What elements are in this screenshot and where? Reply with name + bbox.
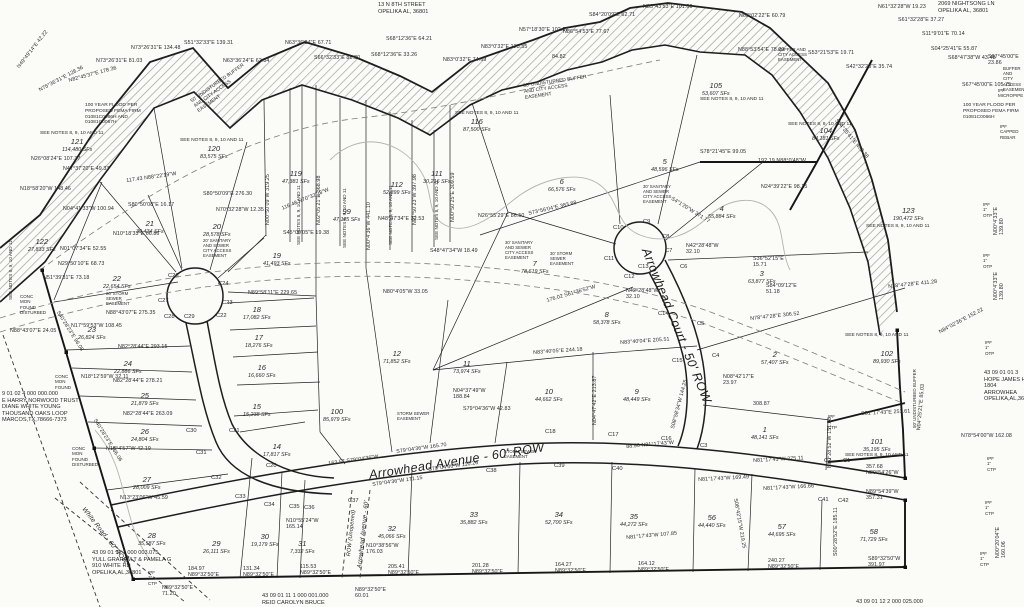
monument-label: IPF 1" CTP xyxy=(987,456,996,472)
lot-number: 28 xyxy=(138,532,166,541)
lot-label: 5744,695 SFs xyxy=(768,523,796,538)
lot-number: 100 xyxy=(323,408,351,417)
lot-number: 29 xyxy=(203,540,230,549)
note-label: 20' STORM SEWER EASEMENT xyxy=(106,291,130,306)
curve-label: C9 xyxy=(643,219,650,226)
bearing-distance-label: N13°23'06"W 45.59 xyxy=(120,495,168,501)
note-label: 100 YEAR FLOOD PER PROPOSED FEMA FIRM 01… xyxy=(963,103,1019,120)
bearing-distance-label: S89°32'50"W 391.97 xyxy=(868,556,900,569)
lot-area: 44,440 SFs xyxy=(698,523,726,529)
bearing-distance-label: 240.27 N89°32'50"E xyxy=(768,558,799,571)
bearing-distance-label: 176.02 S61°36'52"W xyxy=(546,284,596,304)
lot-area: 73,974 SFs xyxy=(453,369,481,375)
lot-number: 120 xyxy=(200,145,228,154)
lot-area: 28,578 SFs xyxy=(203,232,231,238)
lot-number: 8 xyxy=(593,311,621,320)
bearing-distance-label: N04°37'49"W 188.84 xyxy=(453,388,486,401)
lot-number: 17 xyxy=(245,334,273,343)
monument-label: IPF 1" OTP xyxy=(985,340,994,356)
bearing-distance-label: 357.68 N89°54'26"W xyxy=(866,464,899,477)
lot-number: 24 xyxy=(114,360,142,369)
bearing-distance-label: N81°17'43"W 107.85 xyxy=(626,531,677,542)
bearing-distance-label: S79°04'36"W 42.83 xyxy=(463,406,511,412)
bearing-distance-label: N00°4'36"W 441.10 xyxy=(366,202,372,250)
bearing-distance-label: N04°47'42"E 213.87 xyxy=(592,375,598,425)
bearing-distance-label: N83°40'05"E 244.18 xyxy=(533,347,583,357)
lot-label: 1417,817 SFs xyxy=(263,443,291,458)
curve-label: C10 xyxy=(613,225,624,232)
lot-number: 20 xyxy=(203,223,231,232)
bearing-distance-label: N10°38'56"W 176.03 xyxy=(366,543,399,556)
bearing-distance-label: 192.19 N88°0'48"W xyxy=(758,158,806,164)
lot-area: 85,979 SFs xyxy=(323,417,351,423)
curve-label: C42 xyxy=(838,498,849,505)
curve-label: C5 xyxy=(697,321,704,328)
lot-number: 101 xyxy=(863,438,891,447)
adjacent-owner-label: 2069 NIGHTSONG LN OPELIKA AL, 36801 xyxy=(938,1,995,14)
lot-area: 66,576 SFs xyxy=(548,187,576,193)
note-label: 50' UNDISTURBED BUFFER AND CITY ACCESS E… xyxy=(190,63,252,114)
lot-area: 26,111 SFs xyxy=(203,549,230,555)
curve-label: C4 xyxy=(712,353,719,360)
lot-number: 14 xyxy=(263,443,291,452)
street-name-label: ROW (Unopened) xyxy=(346,509,357,556)
lot-area: 55,884 SFs xyxy=(708,214,736,220)
lot-area: 48,141 SFs xyxy=(751,435,779,441)
lot-number: 111 xyxy=(423,170,451,179)
curve-label: C23 xyxy=(222,300,233,307)
lot-area: 30,216 SFs xyxy=(423,179,451,185)
curve-label: C22 xyxy=(216,313,227,320)
lot-area: 35,882 SFs xyxy=(460,520,488,526)
note-label: SEE NOTES 8, 9, 10 AND 11 xyxy=(866,224,930,230)
lot-area: 21,879 SFs xyxy=(131,401,159,407)
lot-label: 123190,472 SFs xyxy=(893,207,924,222)
curve-label: C17 xyxy=(608,432,619,439)
bearing-distance-label: S79°04'36"W 165.70 xyxy=(396,442,447,455)
lot-number: 22 xyxy=(103,275,131,284)
bearing-distance-label: N49°49'14"E 42.22 xyxy=(16,29,50,69)
lot-label: 3335,882 SFs xyxy=(460,511,488,526)
lot-number: 11 xyxy=(453,360,481,369)
bearing-distance-label: S4°1'20"W 371.77 xyxy=(670,196,711,225)
bearing-distance-label: N80°4'05"W 33.05 xyxy=(383,289,428,295)
curve-label: C34 xyxy=(264,502,275,509)
lot-label: 10289,930 SFs xyxy=(873,350,901,365)
curve-label: C1 xyxy=(843,458,850,465)
note-label: SEE NOTES 8, 9, 10 AND 11 xyxy=(434,180,439,240)
note-label: STORM SEWER EASEMENT xyxy=(397,411,429,421)
curve-label: C28 xyxy=(164,314,175,321)
bearing-distance-label: S66°32'33"E 88.20 xyxy=(314,55,360,61)
curve-label: C11 xyxy=(604,256,614,263)
bearing-distance-label: N01°07'34"E 52.55 xyxy=(60,246,106,252)
lot-number: 56 xyxy=(698,514,726,523)
bearing-distance-label: S36°52'15"E 15.71 xyxy=(753,256,784,269)
bearing-distance-label: 164.12 N89°32'50"E xyxy=(638,561,669,574)
adjacent-owner-label: 13 N 8TH STREET OPELIKA AL, 36801 xyxy=(378,2,428,15)
lot-label: 948,449 SFs xyxy=(623,388,651,403)
bearing-distance-label: S68°12'36"E 33.26 xyxy=(371,52,417,58)
lot-area: 48,449 SFs xyxy=(623,397,651,403)
lot-area: 44,272 SFs xyxy=(620,522,648,528)
lot-area: 71,852 SFs xyxy=(383,359,411,365)
lot-area: 17,082 SFs xyxy=(243,315,271,321)
curve-label: C32 xyxy=(211,475,222,482)
lot-area: 16,660 SFs xyxy=(248,373,276,379)
curve-label: C37 xyxy=(348,498,359,505)
bearing-distance-label: N26°08'24"E 107.37 xyxy=(31,156,81,162)
note-label: 50' UNDISTURBED BUFFER AND CITY ACCESS E… xyxy=(523,75,589,101)
note-label: SEE NOTES 8, 9, 10 AND 11 xyxy=(8,240,13,300)
bearing-distance-label: N83°0'32"E 74.69 xyxy=(443,57,486,63)
lot-label: 11947,381 SFs xyxy=(282,170,310,185)
note-label: SEE NOTES 8, 9, 10 AND 11 xyxy=(455,111,519,117)
lot-area: 24,804 SFs xyxy=(131,437,159,443)
bearing-distance-label: S73°56'04"E 383.88 xyxy=(528,200,577,217)
curve-label: C33 xyxy=(235,494,246,501)
lot-label: 1044,662 SFs xyxy=(535,388,563,403)
bearing-distance-label: S67°45'00"E 23.86 xyxy=(988,54,1024,67)
lot-number: 21 xyxy=(136,220,164,229)
street-name-label: Arrowhead Avenue - 60' xyxy=(357,500,371,569)
bearing-distance-label: S78°21'45"E 99.05 xyxy=(700,149,746,155)
adjacent-owner-label: 9 01 02 4 000 000.000 E HARRY NORWOOD TR… xyxy=(2,391,79,424)
note-label: SEE NOTES 8, 9, 10 AND 11 xyxy=(700,97,764,103)
monument-label: IPF 1" OTP xyxy=(983,202,992,218)
lot-label: 3245,066 SFs xyxy=(378,525,406,540)
curve-label: C3 xyxy=(700,443,707,450)
bearing-distance-label: S42°32'28"E 35.74 xyxy=(846,64,892,70)
lot-number: 2 xyxy=(761,351,789,360)
lot-label: 1817,082 SFs xyxy=(243,306,271,321)
bearing-distance-label: N29°50'10"E 68.73 xyxy=(58,261,104,267)
lot-number: 5 xyxy=(651,158,679,167)
bearing-distance-label: 116.48 N70°32'28"W xyxy=(281,187,330,212)
lot-label: 2422,886 SFs xyxy=(114,360,142,375)
bearing-distance-label: N73°26'31"E 134.48 xyxy=(131,45,181,51)
lot-label: 2624,804 SFs xyxy=(131,428,159,443)
bearing-distance-label: N82°28'44"E 293.15 xyxy=(118,344,168,350)
bearing-distance-label: S80°50'09"E 276.30 xyxy=(203,191,252,197)
lot-area: 44,695 SFs xyxy=(768,532,796,538)
bearing-distance-label: N02°05'21"E 368.98 xyxy=(316,175,322,225)
lot-number: 1 xyxy=(751,426,779,435)
curve-label: C31 xyxy=(196,450,207,457)
note-label: 30' SANITARY AND SEWER CITY ACCESS EASEM… xyxy=(643,184,671,204)
lot-area: 87,500 SFs xyxy=(463,127,491,133)
bearing-distance-label: 115.53 N89°32'50"E xyxy=(300,564,331,577)
lot-area: 47,115 SFs xyxy=(333,217,360,223)
lot-number: 27 xyxy=(133,476,161,485)
curve-label: C16 xyxy=(661,436,672,443)
lot-number: 32 xyxy=(378,525,406,534)
bearing-distance-label: N86°54'53"E 77.67 xyxy=(563,29,609,35)
lot-label: 666,576 SFs xyxy=(548,178,576,193)
lot-label: 1718,276 SFs xyxy=(245,334,273,349)
curve-label: C39 xyxy=(554,463,565,470)
lot-area: 57,407 SFs xyxy=(761,360,789,366)
lot-number: 57 xyxy=(768,523,796,532)
curve-label: C38 xyxy=(486,468,497,475)
lot-area: 45,066 SFs xyxy=(378,534,406,540)
bearing-distance-label: S00°28'52"E 185.11 xyxy=(833,507,839,556)
lot-area: 63,877 SFs xyxy=(748,279,776,285)
note-label: BUFFER AND CITY ACCESS EASEMENT xyxy=(778,47,807,63)
lot-label: 10085,979 SFs xyxy=(323,408,351,423)
monument-label: IPF 1" CTP xyxy=(980,551,989,567)
curve-label: C2 xyxy=(824,458,831,465)
lot-label: 3452,700 SFs xyxy=(545,511,573,526)
bearing-distance-label: N00°4'33"E 139.80 xyxy=(993,269,1006,300)
curve-label: C35 xyxy=(289,504,300,511)
lot-area: 114,480 SFs xyxy=(62,147,92,153)
monument-label: CONC MON FOUND DISTURBED xyxy=(72,446,98,467)
lot-number: 3 xyxy=(748,270,776,279)
lot-area: 83,575 SFs xyxy=(200,154,228,160)
note-label: 30' STORM SEWER EASEMENT xyxy=(550,251,574,266)
lot-label: 2222,654 SFs xyxy=(103,275,131,290)
adjacent-owner-label: 43 09 01 12 2 000 025.000 xyxy=(856,599,923,606)
bearing-distance-label: N26°55'29"E 86.50 xyxy=(478,213,524,219)
bearing-distance-label: 308.87 xyxy=(753,401,770,407)
lot-number: 58 xyxy=(860,528,888,537)
lot-area: 22,654 SFs xyxy=(103,284,131,290)
bearing-distance-label: 131.34 N89°32'50"E xyxy=(243,566,274,579)
bearing-distance-label: S53°21'53"E 19.71 xyxy=(808,50,854,56)
adjacent-owner-label: 43 09 01 11 1 000 001.000 REID CAROLYN B… xyxy=(262,593,328,606)
bearing-distance-label: N89°32'50"E 60.01 xyxy=(355,587,386,600)
bearing-distance-label: N83°0'32"E 123.55 xyxy=(481,44,527,50)
note-label: SEE NOTES 8, 9, 10 AND 11 xyxy=(40,131,104,137)
bearing-distance-label: 201.28 N89°32'50"E xyxy=(472,563,503,576)
lot-label: 11130,216 SFs xyxy=(423,170,451,185)
bearing-distance-label: N00°50'09"W 319.25 xyxy=(265,174,271,225)
lot-label: 3019,179 SFs xyxy=(251,533,279,548)
bearing-distance-label: N63°02'22"E 60.79 xyxy=(739,13,785,19)
lot-number: 122 xyxy=(28,238,56,247)
bearing-distance-label: N42°28'48"W 32.10 xyxy=(686,243,719,256)
bearing-distance-label: N04°41'33"W 100.94 xyxy=(63,206,114,212)
lot-number: 99 xyxy=(333,208,360,217)
lot-label: 5644,440 SFs xyxy=(698,514,726,529)
lot-number: 105 xyxy=(702,82,730,91)
lot-label: 3544,272 SFs xyxy=(620,513,648,528)
note-label: 50' UNDISTURBED BUFFER xyxy=(912,369,917,428)
bearing-distance-label: S08°58'34"W 144.25 xyxy=(670,379,689,430)
lot-number: 19 xyxy=(263,252,291,261)
bearing-distance-label: N73°26'31"E 81.03 xyxy=(96,58,142,64)
lot-label: 317,332 SFs xyxy=(290,540,315,555)
adjacent-owner-label: 43 09 01 11 1 000 003.075 YULL GRAHAM T … xyxy=(92,550,171,576)
bearing-distance-label: N82°28'44"E 263.09 xyxy=(123,411,173,417)
lot-area: 47,381 SFs xyxy=(282,179,310,185)
bearing-distance-label: S84°20'09"E 62.71 xyxy=(589,12,635,18)
bearing-distance-label: S61°32'28"E 37.27 xyxy=(898,17,944,23)
lot-number: 35 xyxy=(620,513,648,522)
bearing-distance-label: N81°17'43"W 166.66 xyxy=(763,483,814,492)
lot-number: 102 xyxy=(873,350,901,359)
lot-number: 121 xyxy=(62,138,92,147)
bearing-distance-label: N81°17'43"W 275.11 xyxy=(753,455,804,464)
curve-label: C41 xyxy=(818,497,829,504)
lot-number: 15 xyxy=(243,403,271,412)
bearing-distance-label: S68°12'36"E 64.21 xyxy=(386,36,432,42)
lot-area: 58,378 SFs xyxy=(593,320,621,326)
lot-label: 5871,729 SFs xyxy=(860,528,888,543)
bearing-distance-label: 164.27 N89°32'50"E xyxy=(555,562,586,575)
lot-number: 34 xyxy=(545,511,573,520)
bearing-distance-label: N84°02'36"E 152.22 xyxy=(938,307,985,336)
monument-label: IPF CAPPED REBAR xyxy=(1000,124,1019,140)
bearing-distance-label: S11°9'01"E 70.14 xyxy=(922,31,965,37)
lot-number: 10 xyxy=(535,388,563,397)
lot-label: 10553,607 SFs xyxy=(702,82,730,97)
curve-label: C36 xyxy=(304,505,315,512)
bearing-distance-label: N04°25'21"E 85.03 xyxy=(916,384,926,431)
lot-number: 16 xyxy=(248,364,276,373)
bearing-distance-label: N08°42'17"E 23.97 xyxy=(723,374,754,387)
monument-label: IPF MICROPIPE xyxy=(998,88,1023,99)
bearing-distance-label: N88°43'07"E 24.05 xyxy=(10,328,56,334)
curve-label: C30 xyxy=(186,428,197,435)
bearing-distance-label: N24°39'22"E 98.15 xyxy=(761,184,807,190)
curve-label: C7 xyxy=(665,248,672,255)
monument-label: CONC MON FOUND xyxy=(55,374,71,390)
bearing-distance-label: N89°32'50"E 71.20 xyxy=(162,585,193,598)
lot-area: 41,493 SFs xyxy=(263,261,291,267)
adjacent-owner-label: 43 09 01 01 3 HOPE JAMES H 1804 ARROWHEA… xyxy=(984,370,1024,403)
lot-number: 9 xyxy=(623,388,651,397)
label-layer: N49°49'14"E 42.22N75°36'31"E 128.36N82°4… xyxy=(0,0,1024,607)
lot-number: 112 xyxy=(383,181,411,190)
bearing-distance-label: N88°43'07"E 275.35 xyxy=(106,310,156,316)
plat-map: N49°49'14"E 42.22N75°36'31"E 128.36N82°4… xyxy=(0,0,1024,607)
lot-area: 84,181 SFs xyxy=(812,136,840,142)
lot-number: 116 xyxy=(463,118,491,127)
curve-label: C18 xyxy=(545,429,556,436)
lot-number: 6 xyxy=(548,178,576,187)
lot-area: 89,930 SFs xyxy=(873,359,901,365)
bearing-distance-label: N89°54'39"W 357.31 xyxy=(866,489,899,502)
monument-label: CONC MON FOUND DISTURBED xyxy=(20,294,46,315)
bearing-distance-label: N18°58'20"W 148.46 xyxy=(20,186,71,192)
lot-area: 7,332 SFs xyxy=(290,549,315,555)
lot-area: 44,662 SFs xyxy=(535,397,563,403)
lot-number: 30 xyxy=(251,533,279,542)
lot-area: 53,607 SFs xyxy=(702,91,730,97)
lot-label: 455,884 SFs xyxy=(708,205,736,220)
lot-label: 858,378 SFs xyxy=(593,311,621,326)
curve-label: C29 xyxy=(184,314,195,321)
lot-area: 22,886 SFs xyxy=(114,369,142,375)
bearing-distance-label: N00°4'33"E 139.80 xyxy=(993,204,1006,235)
bearing-distance-label: N00°20'04"E 160.06 xyxy=(995,527,1008,558)
lot-label: 2926,111 SFs xyxy=(203,540,230,555)
lot-label: 9947,115 SFs xyxy=(333,208,360,223)
street-name-label: Arrowhead Avenue - 60' ROW xyxy=(368,440,546,482)
bearing-distance-label: 205.41 N89°32'50"E xyxy=(388,564,419,577)
note-label: SEE NOTES 8, 9, 10 AND 11 xyxy=(296,185,301,245)
lot-area: 28,009 SFs xyxy=(133,485,161,491)
lot-area: 19,179 SFs xyxy=(251,542,279,548)
monument-label: IPF 1" CTP xyxy=(985,500,994,516)
monument-label: IPF 1" OTP xyxy=(983,253,992,269)
bearing-distance-label: N78°47'28"E 306.52 xyxy=(750,311,800,322)
lot-label: 778,619 SFs xyxy=(521,260,549,275)
lot-area: 26,824 SFs xyxy=(78,335,106,341)
bearing-distance-label: S81°17'43"E 251.61 xyxy=(861,408,910,417)
bearing-distance-label: S48°47'34"W 18.49 xyxy=(430,248,478,254)
bearing-distance-label: 84.82 xyxy=(552,54,566,60)
bearing-distance-label: N63°36'24"E 62.84 xyxy=(223,58,269,64)
lot-label: 363,877 SFs xyxy=(748,270,776,285)
bearing-distance-label: 117.43 N88°22'19"W xyxy=(126,171,177,184)
lot-area: 190,472 SFs xyxy=(893,216,924,222)
lot-number: 26 xyxy=(131,428,159,437)
curve-label: C6 xyxy=(680,264,687,271)
curve-label: C21 xyxy=(229,428,240,435)
bearing-distance-label: N78°47'28"E 411.28 xyxy=(888,279,938,290)
lot-label: 2835,587 SFs xyxy=(138,532,166,547)
lot-area: 71,729 SFs xyxy=(860,537,888,543)
bearing-distance-label: N10°55'24"W 165.14 xyxy=(286,518,319,531)
lot-label: 257,407 SFs xyxy=(761,351,789,366)
lot-area: 48,596 SFs xyxy=(651,167,679,173)
note-label: 100 YEAR FLOOD PER PROPOSED FEMA FIRM 01… xyxy=(85,103,141,126)
lot-number: 33 xyxy=(460,511,488,520)
lot-number: 123 xyxy=(893,207,924,216)
lot-area: 35,587 SFs xyxy=(138,541,166,547)
bearing-distance-label: N83°43'53"E 101.00 xyxy=(643,4,693,10)
bearing-distance-label: N48°47'34"E 32.53 xyxy=(378,216,424,222)
lot-number: 104 xyxy=(812,127,840,136)
lot-label: 2326,824 SFs xyxy=(78,326,106,341)
curve-label: C8 xyxy=(662,234,669,241)
lot-number: 31 xyxy=(290,540,315,549)
bearing-distance-label: N63°36'24"E 67.71 xyxy=(285,40,331,46)
curve-label: C12 xyxy=(624,274,635,281)
lot-number: 4 xyxy=(708,205,736,214)
curve-label: C26 xyxy=(168,273,179,280)
lot-number: 12 xyxy=(383,350,411,359)
curve-label: C40 xyxy=(612,466,623,473)
lot-area: 27,833 SFs xyxy=(28,247,56,253)
bearing-distance-label: S80°50'08"E 16.17 xyxy=(128,202,174,208)
bearing-distance-label: N61°32'28"W 19.23 xyxy=(878,4,926,10)
bearing-distance-label: N89°58'11"E 229.65 xyxy=(248,290,297,296)
lot-area: 52,700 SFs xyxy=(545,520,573,526)
bearing-distance-label: S51°32'33"E 139.31 xyxy=(184,40,233,46)
lot-number: 18 xyxy=(243,306,271,315)
curve-label: C27 xyxy=(158,298,169,305)
lot-area: 15,238 SFs xyxy=(243,412,271,418)
note-label: 20' SANITARY AND SEWER CITY ACCESS EASEM… xyxy=(203,238,231,258)
lot-label: 1173,974 SFs xyxy=(453,360,481,375)
bearing-distance-label: N51°39'31"E 73.18 xyxy=(43,275,89,281)
lot-label: 2139,434 SFs xyxy=(136,220,164,235)
lot-area: 39,434 SFs xyxy=(136,229,164,235)
lot-area: 17,817 SFs xyxy=(263,452,291,458)
bearing-distance-label: S08°42'15"W 219.25 xyxy=(732,498,747,549)
note-label: 30' SANITARY AND SEWER CITY ACCESS EASEM… xyxy=(505,240,533,260)
lot-label: 2521,879 SFs xyxy=(131,392,159,407)
lot-label: 11252,899 SFs xyxy=(383,181,411,196)
lot-label: 148,141 SFs xyxy=(751,426,779,441)
bearing-distance-label: N83°40'04"E 205.51 xyxy=(620,337,670,347)
lot-number: 23 xyxy=(78,326,106,335)
lot-label: 2028,578 SFs xyxy=(203,223,231,238)
